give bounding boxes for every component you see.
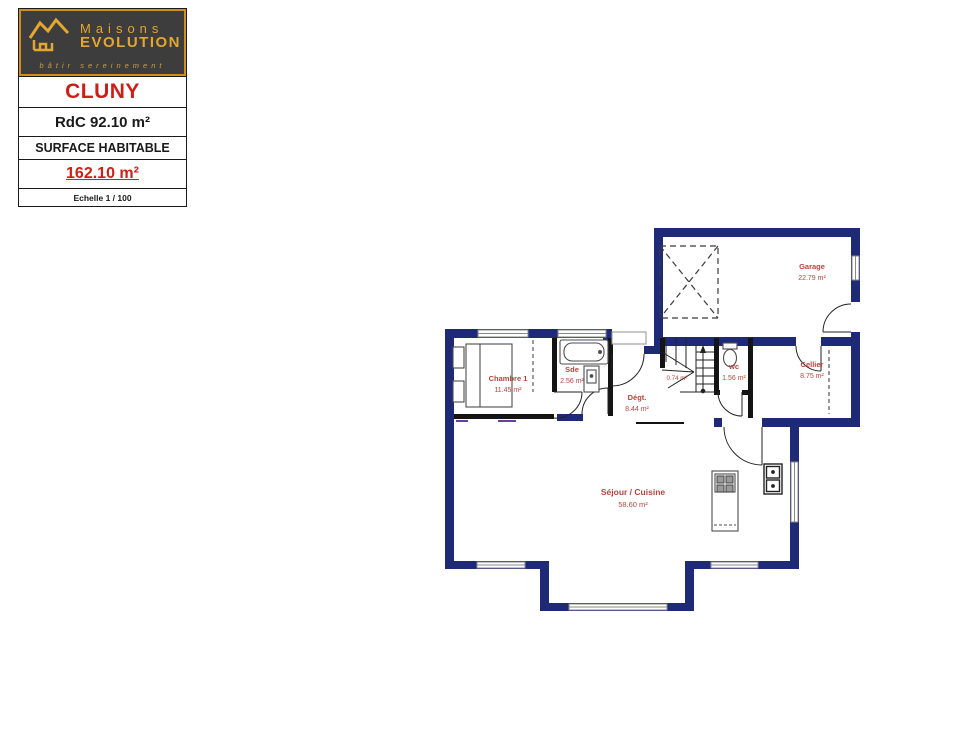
- room-area-garage: 22.79 m²: [798, 275, 826, 282]
- floor-plan: Garage 22.79 m² Chambre 1 11.45 m² Sde 2…: [0, 0, 960, 751]
- washbasin: [584, 366, 599, 392]
- kitchen-sink: [764, 464, 782, 494]
- entry-step: [612, 332, 646, 344]
- room-label-cellier: Cellier: [801, 360, 824, 369]
- kitchen-island: [712, 471, 738, 531]
- room-area-wc: 1.56 m²: [722, 375, 746, 382]
- front-door: [612, 354, 644, 386]
- room-label-sde: Sde: [565, 365, 579, 374]
- room-area-sde: 2.56 m²: [560, 378, 584, 385]
- room-area-stairs: 0.74 m²: [667, 375, 688, 382]
- garage-side-door: [823, 304, 851, 332]
- dashed-annotations: [660, 246, 829, 414]
- bathtub: [560, 340, 608, 364]
- room-area-cellier: 8.75 m²: [800, 373, 824, 380]
- living-hall-door: [724, 427, 762, 465]
- wc-door: [718, 392, 742, 416]
- room-label-garage: Garage: [799, 262, 825, 271]
- garage-ceiling-hatch: [660, 246, 718, 318]
- room-label-wc: wc: [728, 362, 739, 371]
- room-label-sejour: Séjour / Cuisine: [601, 487, 666, 497]
- exterior-walls: [445, 228, 860, 611]
- page: { "colors": { "wall_navy": "#1e2a75", "p…: [0, 0, 960, 751]
- misc-marks: [456, 421, 684, 423]
- room-area-degagement: 8.44 m²: [625, 406, 649, 413]
- windows: [477, 256, 859, 610]
- room-area-chambre1: 11.45 m²: [494, 387, 522, 394]
- room-area-sejour: 58.60 m²: [618, 500, 648, 509]
- room-label-chambre1: Chambre 1: [489, 374, 528, 383]
- staircase: [662, 338, 714, 393]
- room-label-degagement: Dégt.: [628, 393, 647, 402]
